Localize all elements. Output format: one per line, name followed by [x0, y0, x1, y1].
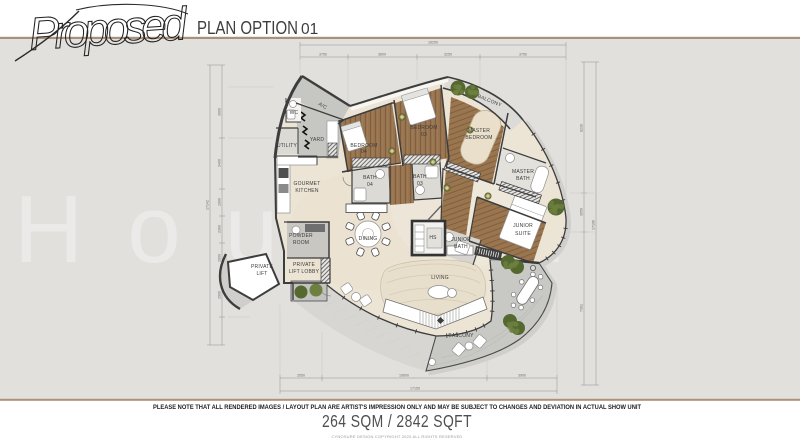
svg-text:3000: 3000: [218, 108, 222, 116]
svg-text:PRIVATE: PRIVATE: [251, 264, 274, 270]
svg-text:01: 01: [301, 21, 318, 38]
svg-text:YARD: YARD: [310, 137, 325, 143]
svg-text:PRIVATE: PRIVATE: [293, 262, 316, 268]
svg-text:UTILITY: UTILITY: [277, 143, 297, 149]
svg-text:SUITE: SUITE: [515, 231, 531, 237]
svg-text:04: 04: [367, 182, 373, 188]
svg-text:17150: 17150: [410, 387, 420, 391]
svg-text:04: 04: [361, 149, 367, 155]
svg-text:17196: 17196: [592, 220, 596, 230]
svg-text:BALCONY: BALCONY: [448, 333, 474, 339]
svg-text:16250: 16250: [428, 41, 438, 45]
svg-text:1900: 1900: [218, 198, 222, 206]
svg-text:PLAN OPTION: PLAN OPTION: [197, 18, 298, 38]
svg-text:17142: 17142: [206, 200, 210, 210]
svg-text:03: 03: [417, 181, 423, 187]
svg-text:2300: 2300: [218, 225, 222, 233]
svg-text:LIVING: LIVING: [431, 275, 449, 281]
svg-text:LIFT: LIFT: [256, 271, 267, 277]
svg-text:2000: 2000: [218, 254, 222, 262]
svg-text:3400: 3400: [218, 159, 222, 167]
svg-text:2900: 2900: [218, 291, 222, 299]
svg-text:3050: 3050: [580, 208, 584, 216]
svg-text:264 SQM / 2842 SQFT: 264 SQM / 2842 SQFT: [322, 411, 472, 431]
svg-text:BEDROOM: BEDROOM: [410, 125, 437, 131]
svg-text:LIFT LOBBY: LIFT LOBBY: [289, 269, 320, 275]
svg-text:BEDROOM: BEDROOM: [465, 135, 492, 141]
svg-text:POWDER: POWDER: [289, 233, 313, 239]
svg-text:CYNOSURE DESIGN COPYRIGHT 2: CYNOSURE DESIGN COPYRIGHT 2020 ALL RIGHT…: [331, 434, 462, 439]
svg-text:BATH: BATH: [363, 175, 377, 181]
svg-text:3600: 3600: [378, 53, 386, 57]
svg-text:3250: 3250: [444, 53, 452, 57]
svg-text:HS: HS: [429, 235, 437, 241]
svg-text:8236: 8236: [580, 124, 584, 132]
svg-text:PLEASE NOTE THAT ALL RENDERED: PLEASE NOTE THAT ALL RENDERED IMAGES / L…: [153, 404, 641, 411]
svg-text:WC: WC: [290, 110, 299, 116]
svg-text:3750: 3750: [319, 53, 327, 57]
svg-text:BATH: BATH: [413, 174, 427, 180]
svg-text:GOURMET: GOURMET: [294, 181, 321, 187]
svg-text:BATH: BATH: [454, 244, 468, 250]
svg-text:KITCHEN: KITCHEN: [295, 188, 319, 194]
svg-text:10600: 10600: [399, 374, 409, 378]
svg-text:3750: 3750: [519, 53, 527, 57]
svg-text:7361: 7361: [580, 304, 584, 312]
svg-text:MASTER: MASTER: [512, 169, 534, 175]
svg-text:MASTER: MASTER: [468, 128, 490, 134]
svg-text:DINING: DINING: [359, 236, 378, 242]
svg-text:JUNIOR: JUNIOR: [513, 223, 533, 229]
svg-text:3900: 3900: [518, 374, 526, 378]
svg-text:ROOM: ROOM: [293, 240, 309, 246]
svg-text:JUNIOR: JUNIOR: [451, 237, 471, 243]
svg-text:2650: 2650: [297, 374, 305, 378]
svg-text:BATH: BATH: [516, 176, 530, 182]
svg-text:03: 03: [421, 132, 427, 138]
